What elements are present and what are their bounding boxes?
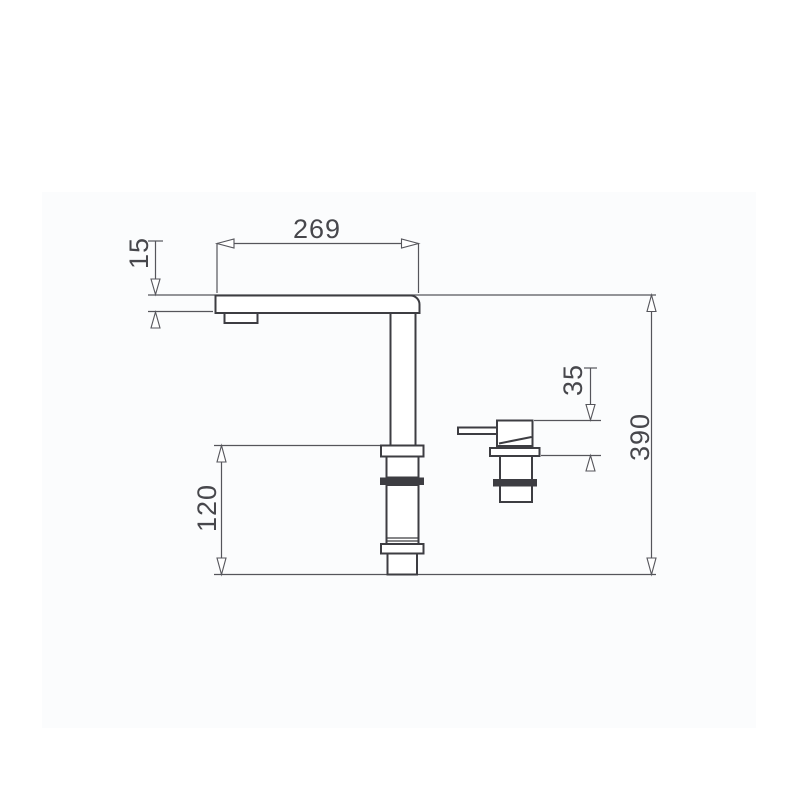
arrowhead-down-120	[217, 558, 226, 575]
base-flange-upper	[381, 446, 424, 457]
arrowhead-up-15	[151, 312, 160, 328]
base-height-label: 120	[192, 484, 222, 532]
arrowhead-right	[402, 239, 419, 248]
arrowhead-down-390	[647, 558, 656, 575]
spout-height-label: 15	[124, 237, 154, 269]
spout-reach-label: 269	[293, 214, 341, 244]
handle-flange	[490, 448, 540, 456]
arrowhead-down-15	[151, 279, 160, 295]
base-body-lower	[387, 485, 419, 544]
handle-lever	[458, 428, 498, 435]
arrowhead-left	[217, 239, 234, 248]
technical-drawing: 269 15 120 35 390	[0, 0, 800, 800]
base-flange-lower	[381, 544, 424, 554]
arrowhead-up-35	[586, 456, 595, 472]
faucet-body	[216, 296, 425, 575]
arrowhead-up-120	[217, 446, 226, 463]
faucet-column	[391, 313, 416, 446]
spout-aerator	[225, 313, 258, 323]
handle-height-label: 35	[558, 364, 588, 396]
spout-outline	[216, 296, 420, 314]
base-body-upper	[387, 457, 419, 478]
handle-ring	[493, 479, 537, 487]
base-shank	[388, 554, 418, 575]
total-height-label: 390	[625, 413, 655, 461]
arrowhead-up-390	[647, 295, 656, 312]
arrowhead-down-35	[586, 405, 595, 421]
base-ring	[380, 478, 424, 486]
side-handle	[458, 421, 540, 503]
